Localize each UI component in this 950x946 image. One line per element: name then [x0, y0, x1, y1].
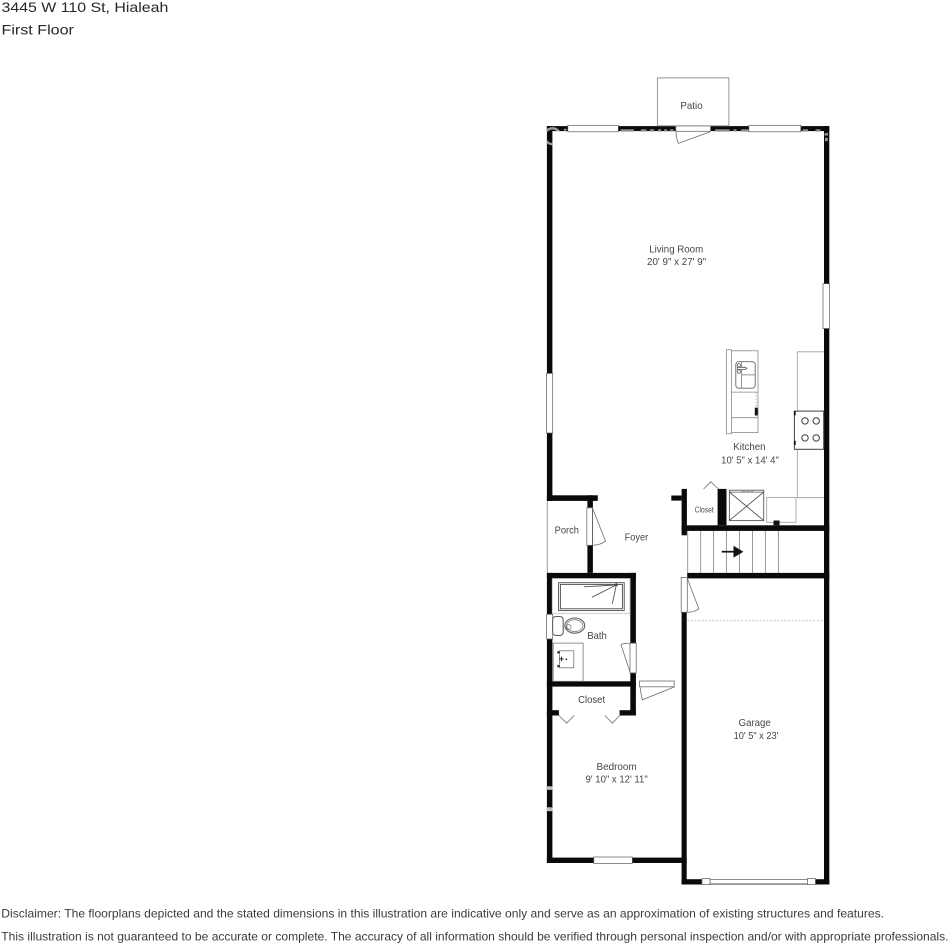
svg-text:Garage: Garage	[739, 718, 771, 729]
svg-text:Patio: Patio	[680, 101, 703, 112]
svg-text:This illustration is not guara: This illustration is not guaranteed to b…	[1, 929, 948, 943]
svg-text:Foyer: Foyer	[625, 533, 649, 544]
svg-text:3445 W 110 St, Hialeah: 3445 W 110 St, Hialeah	[2, 0, 169, 15]
svg-text:Bath: Bath	[587, 631, 607, 642]
svg-text:9' 10" x 12' 11": 9' 10" x 12' 11"	[586, 775, 649, 786]
svg-text:10' 5" x 23': 10' 5" x 23'	[734, 731, 779, 742]
svg-text:Bedroom: Bedroom	[597, 762, 637, 773]
svg-text:10' 5" x 14' 4": 10' 5" x 14' 4"	[721, 456, 779, 467]
svg-text:Kitchen: Kitchen	[733, 442, 765, 453]
svg-text:First Floor: First Floor	[2, 22, 75, 38]
svg-text:Porch: Porch	[555, 525, 580, 536]
svg-text:20' 9" x 27' 9": 20' 9" x 27' 9"	[647, 257, 706, 268]
svg-text:Disclaimer: The floorplans dep: Disclaimer: The floorplans depicted and …	[1, 907, 884, 921]
svg-text:Living Room: Living Room	[649, 244, 703, 255]
svg-text:Closet: Closet	[695, 506, 715, 515]
svg-text:Closet: Closet	[578, 695, 605, 706]
